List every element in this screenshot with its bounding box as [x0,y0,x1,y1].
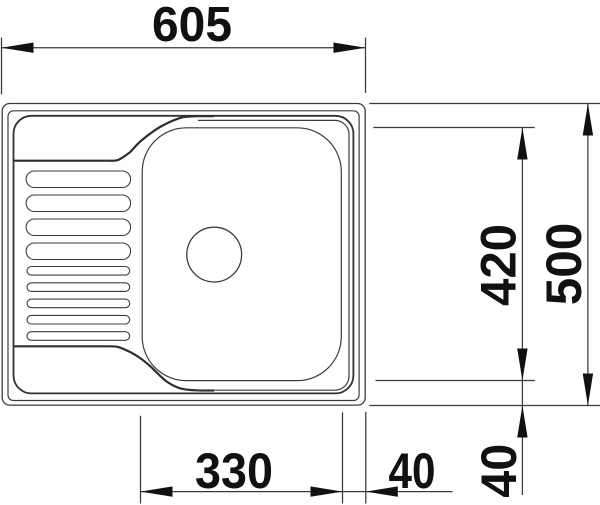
svg-text:420: 420 [470,224,527,306]
svg-text:40: 40 [389,443,436,499]
svg-text:40: 40 [471,444,527,498]
svg-text:605: 605 [152,0,232,52]
svg-text:500: 500 [535,223,592,306]
svg-text:330: 330 [195,443,273,499]
